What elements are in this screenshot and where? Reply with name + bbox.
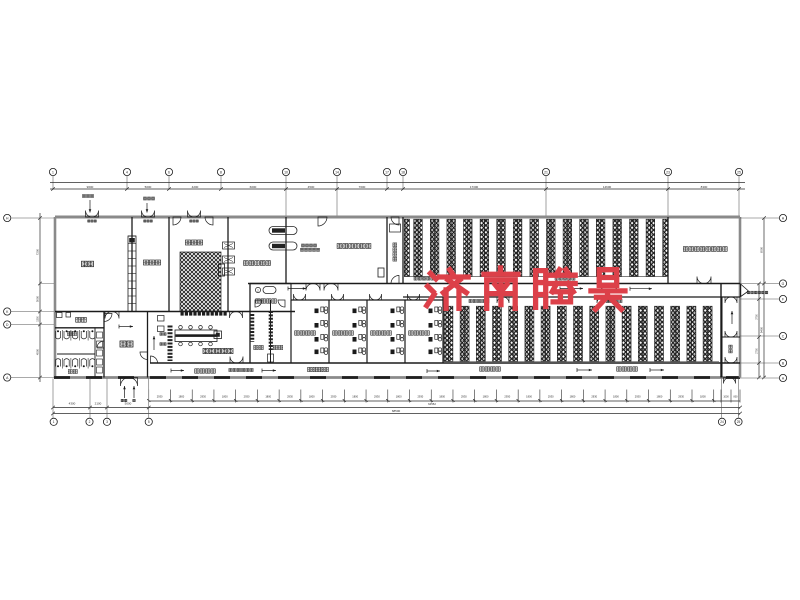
svg-text:14600: 14600 [603, 185, 612, 189]
svg-text:2930: 2930 [374, 395, 380, 399]
svg-text:1800: 1800 [265, 395, 271, 399]
svg-text:6500: 6500 [760, 246, 764, 253]
svg-text:18: 18 [401, 170, 405, 174]
svg-text:6000: 6000 [250, 185, 257, 189]
svg-text:1800: 1800 [352, 395, 358, 399]
svg-text:2930: 2930 [157, 395, 163, 399]
svg-text:2930: 2930 [678, 395, 684, 399]
svg-text:4300: 4300 [69, 402, 76, 406]
svg-text:5000: 5000 [36, 295, 40, 302]
svg-text:1800: 1800 [526, 395, 532, 399]
svg-text:2700: 2700 [756, 348, 759, 354]
svg-text:1800: 1800 [657, 395, 663, 399]
svg-text:64552: 64552 [428, 402, 436, 406]
svg-text:24: 24 [720, 420, 724, 424]
svg-text:7200: 7200 [36, 248, 40, 255]
svg-text:1: 1 [53, 420, 55, 424]
svg-text:G: G [782, 282, 785, 286]
svg-text:1: 1 [52, 170, 54, 174]
svg-text:21: 21 [544, 170, 548, 174]
svg-text:4500: 4500 [36, 348, 40, 355]
svg-text:2930: 2930 [200, 395, 206, 399]
svg-text:800: 800 [734, 396, 739, 399]
svg-text:10: 10 [284, 170, 288, 174]
svg-text:1800: 1800 [309, 395, 315, 399]
svg-text:17: 17 [385, 170, 389, 174]
svg-text:9600: 9600 [87, 185, 94, 189]
svg-text:23: 23 [666, 170, 670, 174]
svg-text:2930: 2930 [417, 395, 423, 399]
svg-text:68500: 68500 [392, 409, 401, 413]
svg-text:9400: 9400 [760, 326, 764, 333]
svg-text:1800: 1800 [613, 395, 619, 399]
svg-text:2930: 2930 [504, 395, 510, 399]
svg-text:4: 4 [126, 170, 128, 174]
svg-text:5000: 5000 [145, 185, 152, 189]
svg-text:1800: 1800 [700, 395, 706, 399]
svg-text:8: 8 [220, 170, 222, 174]
svg-text:2930: 2930 [591, 395, 597, 399]
svg-text:5: 5 [148, 420, 150, 424]
svg-text:3: 3 [106, 420, 108, 424]
svg-text:F: F [782, 297, 784, 301]
svg-text:1300: 1300 [37, 316, 40, 322]
svg-text:2: 2 [89, 420, 91, 424]
svg-text:1800: 1800 [483, 395, 489, 399]
svg-text:6: 6 [168, 170, 170, 174]
svg-text:4200: 4200 [192, 185, 199, 189]
svg-text:4500: 4500 [308, 185, 315, 189]
svg-text:2930: 2930 [287, 395, 293, 399]
svg-text:2930: 2930 [331, 395, 337, 399]
svg-text:1800: 1800 [178, 395, 184, 399]
svg-text:17300: 17300 [470, 185, 479, 189]
svg-text:25: 25 [737, 170, 741, 174]
svg-text:1800: 1800 [439, 395, 445, 399]
svg-text:2930: 2930 [548, 395, 554, 399]
svg-text:2100: 2100 [95, 402, 102, 406]
svg-text:2930: 2930 [635, 395, 641, 399]
svg-text:1800: 1800 [570, 395, 576, 399]
svg-text:3700: 3700 [756, 314, 759, 320]
svg-text:8300: 8300 [701, 185, 708, 189]
svg-text:25: 25 [737, 420, 741, 424]
svg-text:7600: 7600 [359, 185, 366, 189]
svg-text:5000: 5000 [125, 402, 132, 406]
svg-text:1800: 1800 [222, 395, 228, 399]
svg-text:14: 14 [335, 170, 339, 174]
svg-text:1000: 1000 [723, 396, 729, 399]
svg-text:2930: 2930 [461, 395, 467, 399]
svg-text:2930: 2930 [244, 395, 250, 399]
svg-text:1800: 1800 [396, 395, 402, 399]
